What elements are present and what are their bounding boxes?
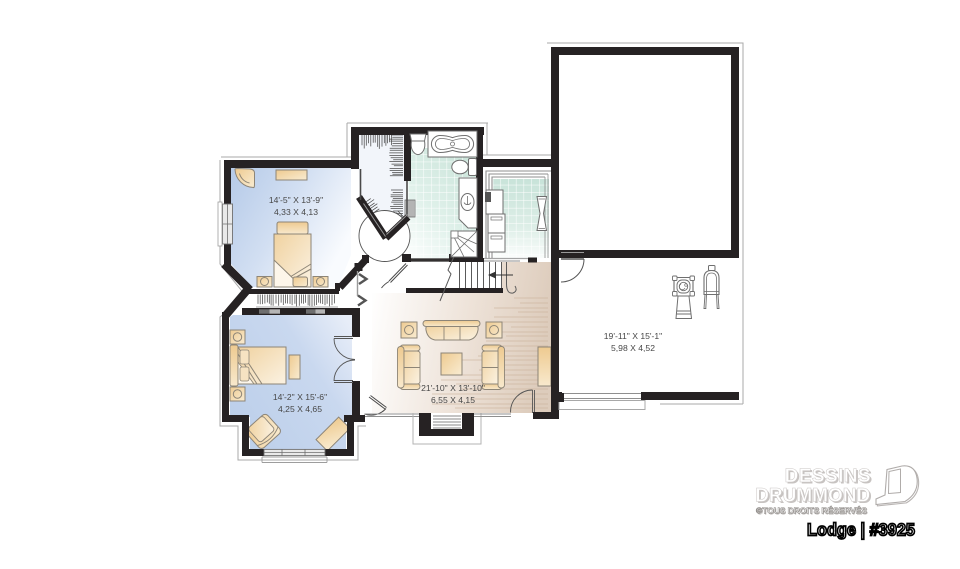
svg-text:5,98 X 4,52: 5,98 X 4,52 bbox=[611, 343, 655, 353]
svg-text:4,25 X 4,65: 4,25 X 4,65 bbox=[278, 404, 322, 414]
svg-text:14'-5" X 13'-9": 14'-5" X 13'-9" bbox=[269, 195, 323, 205]
svg-text:21'-10" X 13'-10": 21'-10" X 13'-10" bbox=[421, 383, 485, 393]
svg-text:©TOUS DROITS RÉSERVÉS: ©TOUS DROITS RÉSERVÉS bbox=[756, 506, 867, 516]
svg-text:14'-2" X 15'-6": 14'-2" X 15'-6" bbox=[273, 392, 327, 402]
svg-text:19'-11" X 15'-1": 19'-11" X 15'-1" bbox=[604, 331, 662, 341]
svg-text:4,33 X 4,13: 4,33 X 4,13 bbox=[274, 207, 318, 217]
svg-text:DRUMMOND: DRUMMOND bbox=[755, 486, 870, 507]
svg-text:DESSINS: DESSINS bbox=[785, 466, 871, 487]
svg-text:6,55 X 4,15: 6,55 X 4,15 bbox=[431, 395, 475, 405]
svg-text:Lodge | #3925: Lodge | #3925 bbox=[807, 520, 915, 540]
